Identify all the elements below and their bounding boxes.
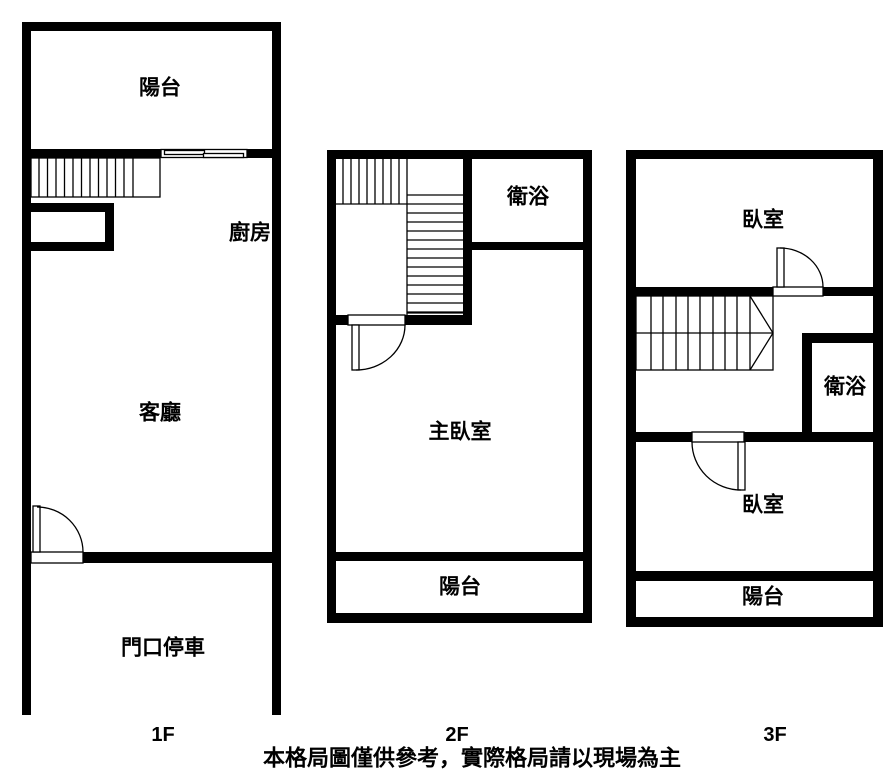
room-label-balcony-1f: 陽台 <box>139 76 181 100</box>
floor-label-1f: 1F <box>151 724 174 746</box>
room-label-bathroom-2f: 衛浴 <box>506 185 550 209</box>
wall-1f-closet-top <box>31 203 105 212</box>
room-label-balcony-3f: 陽台 <box>742 585 784 609</box>
room-label-balcony-2f: 陽台 <box>439 575 481 599</box>
window-1f <box>161 150 247 158</box>
wall-3f-bottom <box>626 617 883 627</box>
disclaimer-caption: 本格局圖僅供參考，實際格局請以現場為主 <box>263 746 681 771</box>
room-label-bathroom-3f: 衛浴 <box>823 375 867 399</box>
stairs-3f <box>636 296 773 370</box>
door-opening <box>348 315 405 325</box>
floor-label-3f: 3F <box>763 724 786 746</box>
wall-3f-top <box>626 150 883 159</box>
door-leaf <box>738 442 745 490</box>
door-leaf <box>33 506 40 552</box>
wall-3f-bedroom-left <box>626 287 773 296</box>
room-label-living-room: 客廳 <box>139 401 181 425</box>
wall-2f-bottom <box>327 613 592 623</box>
door-opening <box>31 552 83 563</box>
wall-1f-balcony-left <box>22 149 161 158</box>
wall-1f-closet-bottom <box>31 242 114 251</box>
wall-3f-right <box>873 150 883 627</box>
wall-2f-bath-bottom <box>463 242 592 250</box>
door-leaf <box>777 248 784 287</box>
wall-3f-bath-left <box>802 333 812 442</box>
wall-3f-bedroom-right <box>823 287 883 296</box>
wall-2f-hall-right <box>405 315 472 325</box>
wall-2f-top <box>327 150 592 159</box>
wall-1f-top <box>22 22 281 31</box>
wall-3f-left <box>626 150 636 627</box>
wall-1f-balcony-right <box>247 149 281 158</box>
wall-1f-left <box>22 22 31 715</box>
wall-3f-lower-right <box>744 432 883 442</box>
window-sash-right <box>204 154 244 158</box>
door-opening <box>773 287 823 296</box>
room-label-bedroom-upper: 臥室 <box>742 208 784 232</box>
room-label-parking: 門口停車 <box>121 636 205 660</box>
wall-1f-entry <box>83 552 281 563</box>
wall-3f-bath-top <box>802 333 883 343</box>
stairs-1f <box>31 158 160 197</box>
stairs-1f-outline <box>31 158 160 197</box>
window-sash-left <box>165 151 205 155</box>
wall-2f-stair-divider <box>463 150 472 325</box>
room-label-bedroom-lower: 臥室 <box>742 493 784 517</box>
wall-3f-lower-left <box>626 432 692 442</box>
floor-label-2f: 2F <box>445 724 468 746</box>
door-opening <box>692 432 744 442</box>
wall-2f-hall-left <box>327 315 348 325</box>
wall-1f-right <box>272 22 281 715</box>
wall-2f-balcony <box>327 552 592 561</box>
room-label-master-bedroom: 主臥室 <box>429 420 492 444</box>
room-label-kitchen: 廚房 <box>229 221 271 245</box>
door-leaf <box>352 325 359 370</box>
floor-plan: 陽台 廚房 客廳 門口停車 1F 衛浴 主臥室 陽台 <box>0 0 889 772</box>
wall-3f-balcony <box>626 571 883 581</box>
